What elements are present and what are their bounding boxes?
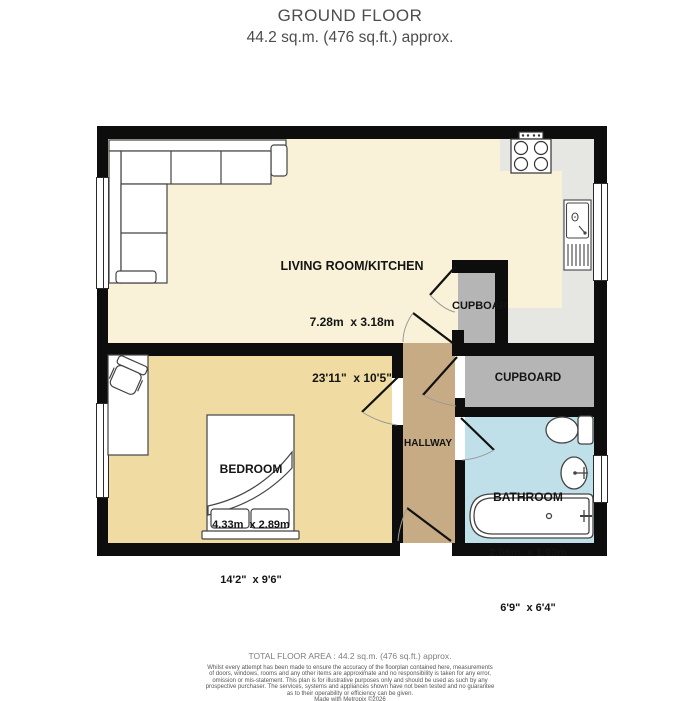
- bathroom-label: BATHROOM 2.06m x 1.93m 6'9" x 6'4": [489, 449, 567, 656]
- kitchen-sink: [564, 200, 591, 270]
- bedroom-name: BEDROOM: [212, 462, 290, 477]
- bathroom-imperial: 6'9" x 6'4": [489, 601, 567, 615]
- bedroom-metric: 4.33m x 2.89m: [212, 518, 290, 532]
- footer: TOTAL FLOOR AREA : 44.2 sq.m. (476 sq.ft…: [0, 651, 700, 701]
- door-cupboard-lower: [423, 357, 457, 406]
- living-room-label: LIVING ROOM/KITCHEN 7.28m x 3.18m 23'11"…: [280, 217, 423, 427]
- living-room-metric: 7.28m x 3.18m: [280, 315, 423, 330]
- living-room-name: LIVING ROOM/KITCHEN: [280, 258, 423, 274]
- bathroom-metric: 2.06m x 1.93m: [489, 546, 567, 560]
- cupboard-upper-label: CUPBOAR: [452, 300, 508, 312]
- metropix-credit: Made with Metropix ©2026: [0, 697, 700, 701]
- floorplan-page: GROUND FLOOR 44.2 sq.m. (476 sq.ft.) app…: [0, 0, 700, 701]
- toilet: [546, 416, 593, 444]
- door-entry: [398, 508, 451, 541]
- sofa: [109, 140, 287, 283]
- living-room-imperial: 23'11" x 10'5": [280, 371, 423, 386]
- hallway-label: HALLWAY: [404, 438, 452, 451]
- bathroom-name: BATHROOM: [489, 490, 567, 505]
- hob: [511, 132, 551, 173]
- bedroom-label: BEDROOM 4.33m x 2.89m 14'2" x 9'6": [212, 421, 290, 628]
- bedroom-imperial: 14'2" x 9'6": [212, 573, 290, 587]
- cupboard-lower-label: CUPBOARD: [495, 372, 561, 384]
- total-floor-area: TOTAL FLOOR AREA : 44.2 sq.m. (476 sq.ft…: [0, 651, 700, 661]
